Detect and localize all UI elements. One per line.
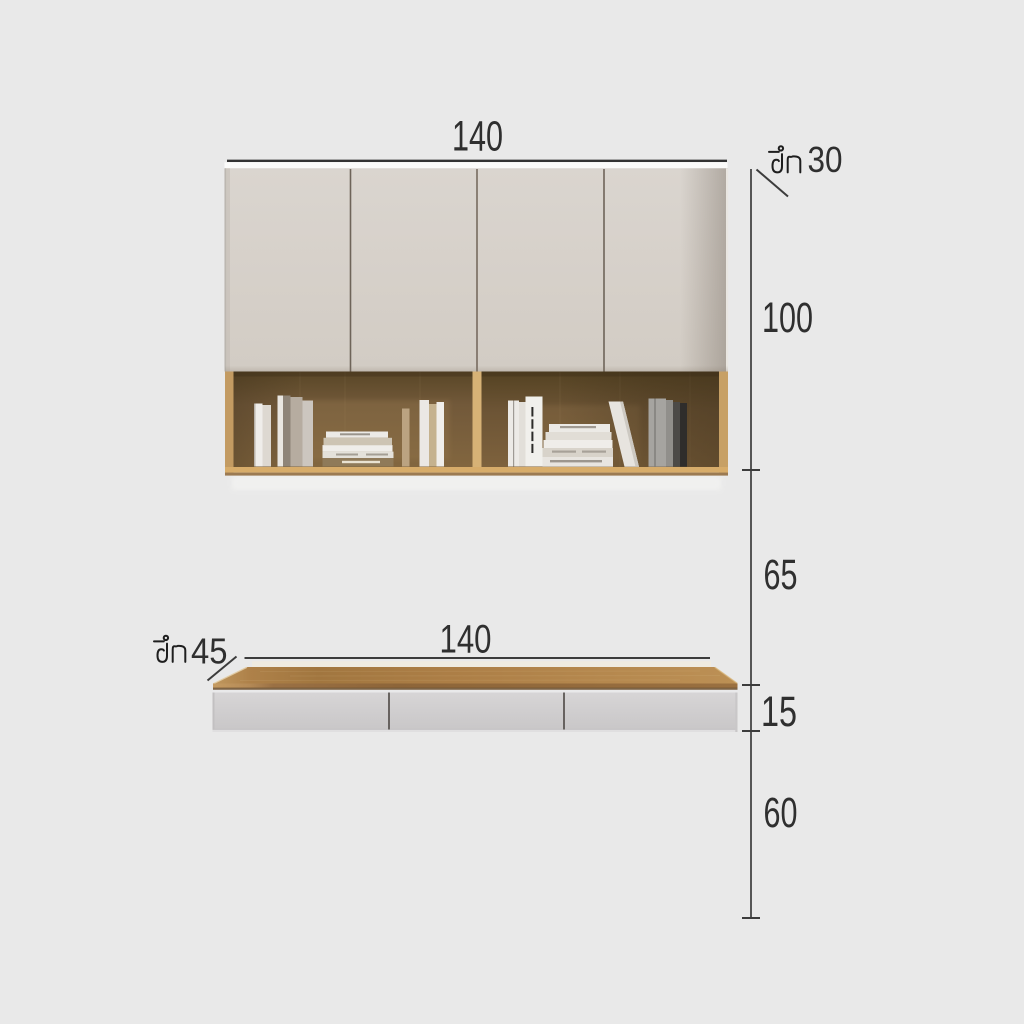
svg-text:65: 65 <box>764 551 798 599</box>
svg-text:140: 140 <box>440 618 492 662</box>
svg-text:30: 30 <box>808 139 843 180</box>
svg-text:45: 45 <box>191 631 228 672</box>
svg-text:140: 140 <box>452 113 503 161</box>
svg-text:60: 60 <box>764 789 798 837</box>
svg-text:100: 100 <box>762 294 813 342</box>
svg-text:15: 15 <box>761 688 797 736</box>
